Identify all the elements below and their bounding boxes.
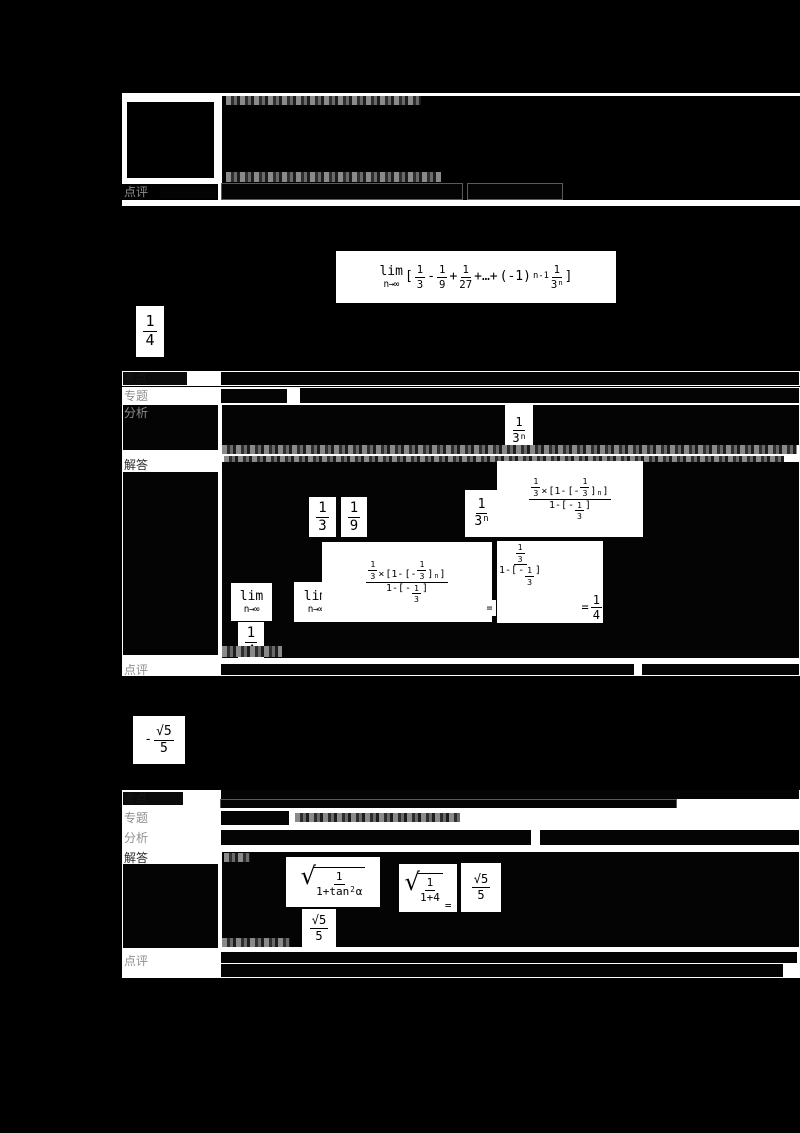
row-fenxi-2: 分析: [122, 828, 800, 849]
fraction-one-over-3n: 13n: [551, 264, 563, 289]
row-kaodian-1: 考点: [122, 371, 800, 386]
close-bracket: ]: [565, 270, 573, 284]
formula-limit-value: 13 1-[ - 13 ] = 14: [497, 541, 603, 623]
label-zhuanti: 专题: [124, 390, 148, 402]
lim-word: lim: [379, 265, 402, 278]
times-sign: ×: [541, 487, 547, 498]
formula-problem-limit: limn→∞ [ 13 - 19 + 127 +…+ (-1)n-1 13n ]: [336, 251, 616, 303]
redacted-image-block: [127, 102, 214, 178]
redacted-text-bar: [642, 664, 799, 675]
minus-sign: -: [144, 733, 152, 747]
formula-sqrt5-over-5-answer: √55: [302, 909, 336, 947]
exponent-n-minus-1: n-1: [533, 272, 549, 282]
formula-sqrt-one-over-1-plus-tan2: √ 1 1+tan2α: [286, 857, 380, 907]
label-kaodian: 考点: [123, 792, 183, 805]
row-jieda-1: 解答 13 19 13n 13 × [1- [- 13 ]n: [122, 456, 800, 663]
formula-one-over-3n-work: 13n: [465, 490, 498, 537]
formula-lim-left: limn→∞: [231, 583, 272, 621]
redacted-text-block: [123, 864, 218, 948]
redacted-text-bar: [468, 184, 562, 199]
label-dianping: 点评: [124, 955, 148, 967]
label-fenxi: 分析: [124, 407, 148, 419]
fraction-one-twenty-seventh: 127: [459, 264, 472, 289]
row-jieda-2: 解答 √ 1 1+tan2α √ 1: [122, 849, 800, 950]
formula-geometric-sum: 13 × [1- [- 13 ]n ] 1-[ - 13 ]: [497, 461, 643, 537]
answer-neg-sqrt5-over-5: - √55: [133, 716, 185, 764]
row-kaodian-2: 考点: [122, 790, 800, 808]
formula-one-over-3n: 13n: [505, 407, 533, 454]
limit-operator: limn→∞: [379, 265, 402, 289]
fraction-one-third: 13: [415, 264, 425, 289]
equals-sign: =: [445, 900, 452, 912]
fraction-one-ninth: 19: [437, 264, 447, 289]
row-fenxi-1: 分析 13n: [122, 404, 800, 456]
plus-sign: +: [449, 270, 457, 284]
redacted-text-bar: [221, 830, 531, 845]
redacted-text-bar: [160, 187, 216, 198]
row-zhuanti-1: 专题: [122, 387, 800, 404]
redacted-text-block: [533, 405, 799, 445]
redacted-answer-note: [222, 646, 282, 657]
formula-one-ninth: 19: [341, 497, 367, 537]
scanned-document-page: 点评 limn→∞ [ 13 - 19 + 127 +…+ (-1)n-1 13…: [0, 0, 800, 1133]
redacted-text-bar: [300, 388, 799, 403]
label-jieda: 解答: [124, 852, 148, 864]
table1-bottom-border: [122, 200, 800, 206]
redacted-text-bar: [221, 800, 676, 808]
ellipsis-terms: +…+: [474, 270, 497, 284]
table1-top-border: [122, 93, 800, 96]
redacted-text-bar: [222, 184, 462, 199]
row-zhuanti-2: 专题: [122, 808, 800, 828]
equals-sign-box: =: [483, 600, 496, 616]
redacted-text-bar: [295, 813, 460, 822]
redacted-text-block: [123, 472, 218, 655]
equals-one-fourth: = 14: [582, 594, 602, 622]
negative-one: (-1): [500, 270, 531, 284]
redacted-text-bar: [226, 96, 421, 105]
label-dianping: 点评: [124, 664, 148, 676]
redacted-text-bar: [221, 952, 797, 963]
formula-sqrt5-over-5: √55: [461, 863, 501, 912]
redacted-text-bar: [221, 664, 634, 675]
label-kaodian: 考点: [123, 372, 187, 385]
redacted-text-bar: [221, 790, 799, 799]
formula-one-third: 13: [309, 497, 336, 537]
redacted-text-bar: [226, 172, 441, 182]
formula-geometric-sum-2: 13 × [1- [- 13 ]n ] 1-[ - 13 ]: [322, 542, 492, 622]
answer-one-fourth: 14: [136, 306, 164, 357]
row-dianping-2: 点评: [122, 950, 800, 978]
redacted-text-bar: [221, 811, 289, 825]
lim-subscript: n→∞: [384, 280, 399, 289]
redacted-text-bar: [540, 830, 799, 845]
redacted-text-bar: [221, 964, 783, 977]
table1-left-cell: [122, 96, 219, 184]
open-bracket: [: [405, 270, 413, 284]
redacted-solution-start: [224, 853, 250, 862]
label-jieda: 解答: [124, 459, 148, 471]
label-fenxi: 分析: [124, 832, 148, 844]
label-dianping: 点评: [124, 186, 148, 198]
minus-sign: -: [427, 270, 435, 284]
row-dianping-1: 点评: [122, 663, 800, 676]
label-zhuanti: 专题: [124, 812, 148, 824]
redacted-answer-note: [222, 938, 290, 947]
redacted-text-bar: [221, 389, 287, 403]
formula-sqrt-one-over-5: √ 1 1+4 =: [399, 864, 457, 912]
redacted-text-bar: [221, 372, 799, 385]
